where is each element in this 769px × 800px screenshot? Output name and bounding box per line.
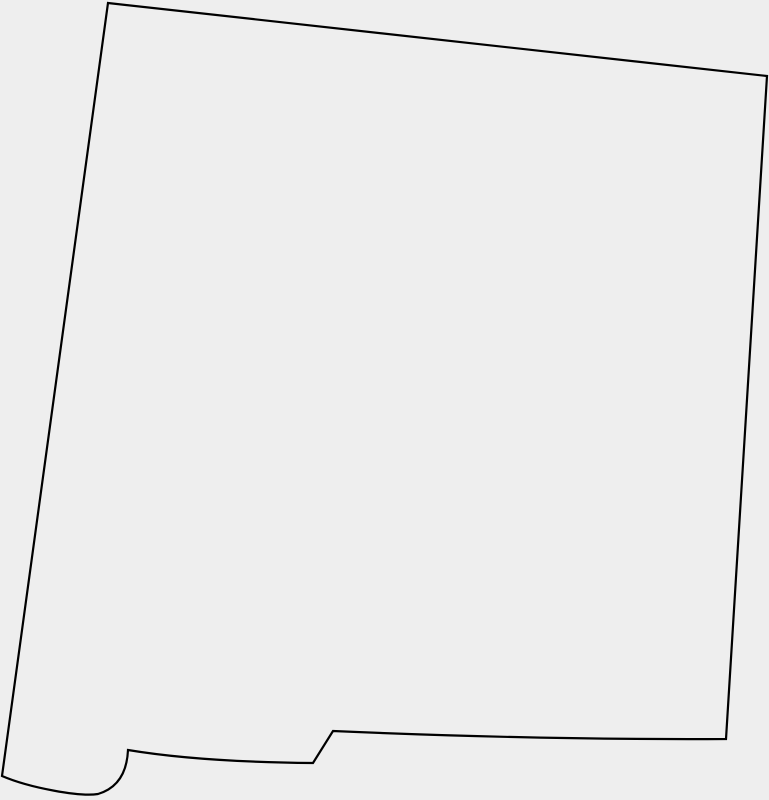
map-canvas [0,0,769,800]
state-border-path [2,3,767,795]
new-mexico-state-outline [0,0,769,800]
